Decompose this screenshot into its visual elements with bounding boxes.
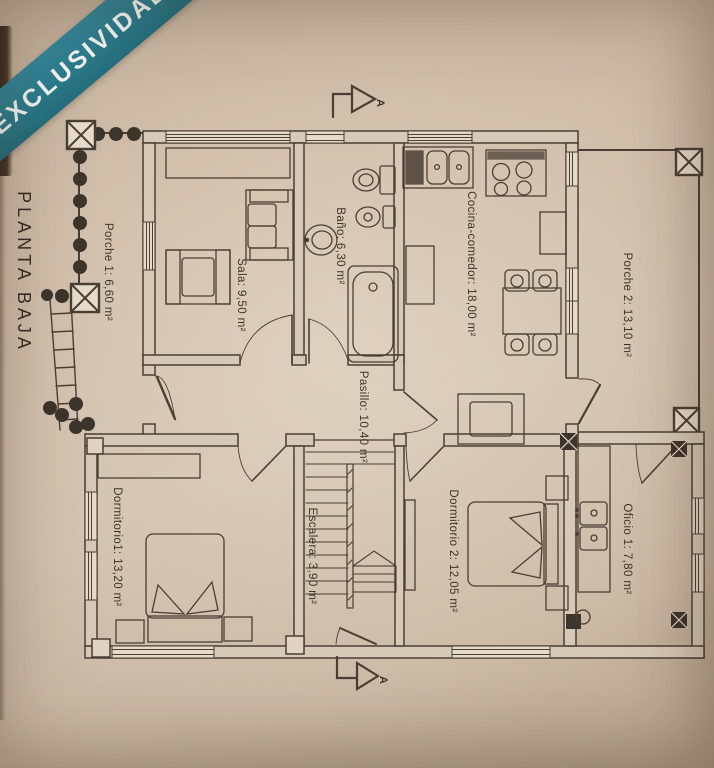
fridge-icon <box>540 212 566 254</box>
bathroom-fixtures <box>305 166 398 362</box>
bed-icon <box>468 502 558 586</box>
sala-furniture <box>166 148 293 304</box>
oficio-fixtures <box>576 446 610 624</box>
bed-icon <box>146 534 224 642</box>
porch-columns <box>41 127 141 434</box>
bano-door <box>309 319 348 363</box>
toilet-icon <box>353 166 395 194</box>
sideboard <box>166 148 290 178</box>
radiator <box>405 500 415 590</box>
wardrobe <box>98 454 200 478</box>
section-letter: A <box>377 676 389 684</box>
page-edge-shadow-soft <box>0 160 6 720</box>
staircase-icon <box>306 452 396 608</box>
room-label-dormitorio2: Dormitorio 2: 12,05 m² <box>447 489 459 612</box>
nightstand <box>224 617 252 641</box>
kitchen-sink-icon <box>403 147 473 188</box>
nightstand <box>116 620 144 643</box>
porche1-structure <box>41 121 143 434</box>
room-label-porche1: Porche 1: 6,60 m² <box>102 223 114 321</box>
room-label-cocina: Cocina-comedor: 18,00 m² <box>465 191 477 337</box>
section-marker-bottom: A <box>337 657 389 689</box>
bathtub-icon <box>348 266 398 362</box>
bidet-icon <box>356 206 395 228</box>
scanned-floorplan-photo: A A PLANTA BAJA Porche 1: 6,60 m² Sala: … <box>0 0 714 768</box>
room-label-dormitorio1: Dormitorio1: 13,20 m² <box>111 487 123 607</box>
kitchen-fixtures <box>403 147 566 444</box>
escalera-door <box>336 628 376 644</box>
laundry-sink-icon <box>576 502 607 550</box>
understair-storage <box>353 551 396 566</box>
sofa-icon <box>246 190 293 260</box>
room-label-bano: Baño: 6,30 m² <box>334 207 346 284</box>
entrance-door <box>155 376 175 419</box>
structural-columns <box>87 433 687 657</box>
stove-icon <box>486 150 546 196</box>
dorm2-door <box>406 446 444 481</box>
floor-plan: A A PLANTA BAJA Porche 1: 6,60 m² Sala: … <box>0 0 714 768</box>
room-label-sala: Sala: 9,50 m² <box>235 258 247 332</box>
dining-table-icon <box>503 270 561 355</box>
room-label-oficio: Oficio 1: 7,80 m² <box>621 503 633 594</box>
dorm1-door <box>238 446 286 481</box>
room-label-escalera: Escalera: 3,90 m² <box>306 508 318 605</box>
washbasin-icon <box>305 225 337 255</box>
column-x-icon <box>674 149 702 433</box>
armchair-icon <box>166 250 230 304</box>
room-label-pasillo: Pasillo: 10,40 m² <box>357 371 369 463</box>
counter <box>578 446 610 592</box>
cocina-door <box>404 392 437 433</box>
dormitorio2-furniture <box>405 476 568 610</box>
plan-title: PLANTA BAJA <box>14 191 34 353</box>
section-letter: A <box>374 99 386 107</box>
column-x-icon <box>67 121 99 312</box>
porche2-door <box>579 379 600 423</box>
counter <box>406 246 434 304</box>
section-marker-top: A <box>333 86 386 117</box>
room-label-porche2: Porche 2: 13,10 m² <box>621 252 633 357</box>
